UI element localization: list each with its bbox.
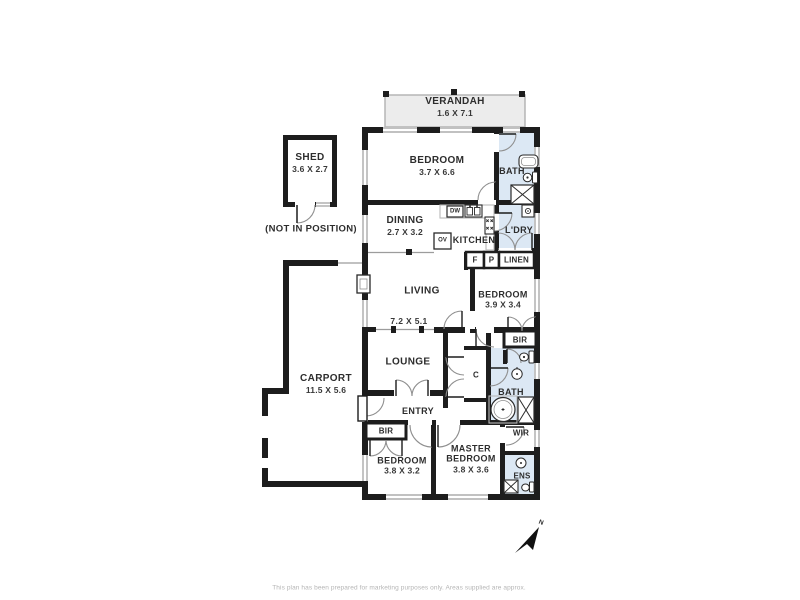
room-name: CARPORT xyxy=(300,373,352,385)
room-name: BEDROOM xyxy=(410,155,465,167)
oven-label: OV xyxy=(438,238,447,245)
bir-mid-label: BIR xyxy=(513,335,527,344)
room-name: BEDROOM xyxy=(478,289,527,299)
room-dim: 1.6 X 7.1 xyxy=(425,108,484,118)
room-name: SHED xyxy=(292,152,328,164)
room-name: LOUNGE xyxy=(386,356,431,368)
cupboard-label: C xyxy=(473,370,479,379)
shower-icon-ens xyxy=(504,480,518,493)
linen-label: LINEN xyxy=(504,255,529,264)
room-name: ENTRY xyxy=(402,406,434,416)
front-door-leaf xyxy=(358,396,367,421)
laundry-trough-icon xyxy=(522,205,534,217)
living-label: LIVING xyxy=(404,285,439,297)
bedroom-bottom-label: BEDROOM 3.8 X 3.2 xyxy=(377,455,426,476)
bedroom-mid-label: BEDROOM 3.9 X 3.4 xyxy=(478,289,527,310)
room-dim: 3.8 X 3.2 xyxy=(377,467,426,477)
room-name: BEDROOM xyxy=(377,455,426,465)
room-dim: 3.9 X 3.4 xyxy=(478,301,527,311)
room-name: BATH xyxy=(499,166,525,176)
shed-note: (NOT IN POSITION) xyxy=(265,225,357,236)
laundry-label: L'DRY xyxy=(505,225,533,235)
heater-icon xyxy=(357,275,370,293)
bath-top-label: BATH xyxy=(499,166,525,176)
bedroom-top-label: BEDROOM 3.7 X 6.6 xyxy=(410,155,465,177)
pantry-label: P xyxy=(489,255,495,264)
room-dim: 11.5 X 5.6 xyxy=(300,385,352,395)
north-arrow-icon xyxy=(515,527,539,553)
basin-icon-ens xyxy=(516,458,526,468)
bath-mid-label: BATH xyxy=(498,387,524,397)
entry-label: ENTRY xyxy=(402,406,434,416)
floor-plan: VERANDAH 1.6 X 7.1 SHED 3.6 X 2.7 (NOT I… xyxy=(0,0,800,600)
room-name: L'DRY xyxy=(505,225,533,235)
wir-label: WIR xyxy=(513,428,529,437)
bir-bottom-label: BIR xyxy=(379,426,393,435)
carport-label: CARPORT 11.5 X 5.6 xyxy=(300,373,352,395)
fridge-label: F xyxy=(472,255,477,264)
dining-label: DINING 2.7 X 3.2 xyxy=(386,215,423,237)
lounge-label: LOUNGE xyxy=(386,356,431,368)
room-dim: 2.7 X 3.2 xyxy=(386,227,423,237)
stove-icon xyxy=(485,217,494,234)
living-dim-label: 7.2 X 5.1 xyxy=(390,317,427,327)
room-name: VERANDAH xyxy=(425,96,484,108)
shed-label: SHED 3.6 X 2.7 xyxy=(292,152,328,174)
room-name: MASTER BEDROOM xyxy=(438,443,504,464)
shower-icon-bath-top xyxy=(511,185,534,204)
room-dim: 3.7 X 6.6 xyxy=(410,167,465,177)
shower-icon-bath-mid xyxy=(518,397,534,423)
dishwasher-label: DW xyxy=(450,208,460,215)
shed-structure xyxy=(286,138,335,224)
verandah-label: VERANDAH 1.6 X 7.1 xyxy=(425,96,484,118)
sink-icon xyxy=(465,205,482,217)
toilet-icon-bath-top xyxy=(523,172,537,183)
room-name: LIVING xyxy=(404,285,439,297)
disclaimer-text: This plan has been prepared for marketin… xyxy=(272,584,526,591)
master-bedroom-label: MASTER BEDROOM 3.8 X 3.6 xyxy=(438,443,504,474)
room-dim: 3.8 X 3.6 xyxy=(438,465,504,475)
kitchen-label: KITCHEN xyxy=(453,235,495,245)
ens-label: ENS xyxy=(513,471,530,480)
room-name: BATH xyxy=(498,387,524,397)
room-name: DINING xyxy=(386,215,423,227)
floor-plan-graphics xyxy=(0,0,800,600)
room-name: KITCHEN xyxy=(453,235,495,245)
room-dim: 3.6 X 2.7 xyxy=(292,164,328,174)
